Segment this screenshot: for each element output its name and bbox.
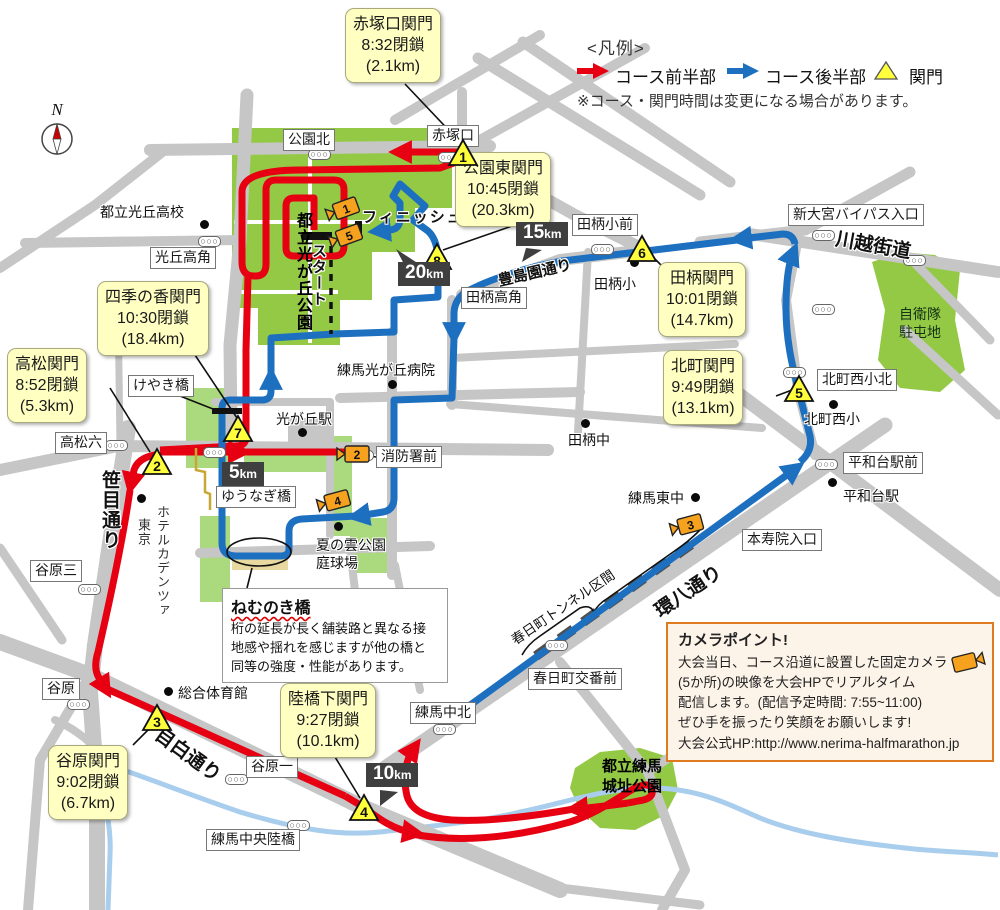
poi-natsunokumo: 夏の雲公園 庭球場: [316, 536, 386, 572]
callout-title: 陸橋下関門: [288, 689, 368, 710]
legend-checkpoint-label: 関門: [909, 63, 943, 88]
km-unit: km: [426, 267, 443, 281]
traffic-signal-icon: [78, 584, 101, 595]
poi-nerima-higashi-chu: 練馬東中: [628, 488, 684, 508]
park-label-line: 都立練馬: [602, 757, 662, 777]
place-box-honjuin: 本寿院入口: [742, 529, 822, 551]
legend-checkpoint-icon: [873, 60, 899, 86]
checkpoint-marker-7: 7: [222, 414, 254, 448]
place-box-nerima-chuo-rikkyo: 練馬中央陸橋: [206, 829, 300, 851]
km-marker-5: 5km: [222, 462, 264, 486]
camera-icon: [949, 646, 990, 685]
km-value: 10: [373, 763, 394, 784]
place-box-yawara3: 谷原三: [30, 560, 82, 582]
checkpoint-number: 4: [360, 804, 368, 820]
callout-checkpoint-4: 陸橋下関門 9:27閉鎖 (10.1km): [280, 683, 376, 758]
checkpoint-number: 2: [153, 458, 161, 474]
callout-distance: (20.3km): [463, 200, 543, 221]
poi-dot: [137, 494, 146, 503]
traffic-signal-icon: [591, 244, 614, 255]
poi-hikarigaoka-sta: 光が丘駅: [276, 409, 332, 429]
callout-distance: (18.4km): [105, 329, 201, 350]
callout-title: 谷原関門: [56, 751, 120, 772]
legend-second-half-label: コース後半部: [765, 63, 866, 88]
finish-label: フィニッシュ: [362, 206, 464, 227]
camera-info-box: カメラポイント! 大会当日、コース沿道に設置した固定カメラ (5か所)の映像を大…: [666, 622, 994, 762]
traffic-signal-icon: [545, 640, 568, 651]
traffic-signal-icon: [67, 699, 90, 710]
checkpoint-number: 6: [638, 245, 646, 261]
callout-title: 北町関門: [671, 356, 735, 377]
traffic-signal-icon: [812, 230, 835, 241]
callout-distance: (14.7km): [666, 310, 738, 331]
checkpoint-marker-6: 6: [626, 234, 658, 268]
poi-kitamachi-nishi-sho: 北町西小: [804, 409, 860, 429]
poi-dot: [828, 478, 837, 487]
place-box-koenkita: 公園北: [283, 129, 335, 151]
callout-checkpoint-7: 四季の香関門 10:30閉鎖 (18.4km): [97, 281, 209, 356]
traffic-signal-icon: [203, 447, 226, 458]
callout-checkpoint-3: 谷原関門 9:02閉鎖 (6.7km): [48, 745, 128, 820]
place-box-tagara-takakado: 田柄高角: [461, 287, 527, 309]
place-box-shobosho-mae: 消防署前: [376, 446, 442, 468]
checkpoint-marker-3: 3: [141, 703, 173, 737]
poi-line: 夏の雲公園: [316, 536, 386, 554]
marathon-course-map: N <凡例> コース前半部 コース後半部 関門 ※コース・関門時間は変更になる場…: [0, 0, 1000, 910]
callout-time: 9:27閉鎖: [288, 710, 368, 731]
callout-title: 田柄関門: [666, 268, 738, 289]
road-label-sasame: 笹目通り: [96, 470, 123, 550]
place-box-yunagibashi: ゆうなぎ橋: [216, 486, 296, 508]
checkpoint-number: 1: [459, 149, 467, 165]
legend-second-half-arrow-icon: [725, 62, 761, 85]
checkpoint-number: 5: [795, 385, 803, 401]
nemunoki-line: 同等の強度・性能があります。: [231, 658, 439, 677]
start-label: スタート: [308, 243, 329, 307]
place-box-yawara1: 谷原一: [246, 756, 298, 778]
km-marker-10: 10km: [366, 763, 418, 787]
poi-dot: [200, 220, 209, 229]
poi-dot: [164, 687, 173, 696]
poi-dot: [298, 428, 307, 437]
callout-checkpoint-5: 北町関門 9:49閉鎖 (13.1km): [663, 350, 743, 425]
checkpoint-marker-1: 1: [447, 138, 479, 172]
legend-title: <凡例>: [587, 34, 645, 59]
nemunoki-line: 地感や揺れを感じますが他の橋と: [231, 639, 439, 658]
callout-time: 10:30閉鎖: [105, 308, 201, 329]
camera-info-line: (5か所)の映像を大会HPでリアルタイム: [678, 673, 982, 693]
callout-time: 8:32閉鎖: [353, 35, 433, 56]
legend: <凡例> コース前半部 コース後半部 関門 ※コース・関門時間は変更になる場合が…: [565, 30, 997, 112]
callout-time: 8:52閉鎖: [15, 375, 79, 396]
place-box-nerima-nakakita: 練馬中北: [410, 702, 476, 724]
km-unit: km: [544, 227, 561, 241]
km-unit: km: [240, 467, 257, 481]
poi-dot: [334, 522, 343, 531]
poi-hikarigaoka-hosp: 練馬光が丘病院: [337, 360, 435, 380]
callout-distance: (10.1km): [288, 731, 368, 752]
place-box-yawara: 谷原: [42, 678, 80, 700]
km-value: 20: [405, 262, 426, 283]
place-box-tagara-sho-mae: 田柄小前: [572, 214, 638, 236]
traffic-signal-icon: [308, 149, 331, 160]
poi-hikarigaoka-hs: 都立光丘高校: [100, 202, 184, 222]
camera-info-line: 大会当日、コース沿道に設置した固定カメラ: [678, 653, 982, 673]
camera-marker-2: 2: [336, 441, 372, 472]
poi-hotel-line2: 東京: [134, 518, 153, 546]
park-label-jieitai: 自衛隊 駐屯地: [899, 305, 941, 341]
nemunoki-note: ねむのき橋 桁の延長が長く舗装路と異なる接 地感や揺れを感じますが他の橋と 同等…: [222, 588, 448, 683]
poi-tagara-sho: 田柄小: [594, 274, 636, 294]
poi-dot: [691, 493, 700, 502]
callout-distance: (5.3km): [15, 396, 79, 417]
place-box-shin-omiya: 新大宮バイパス入口: [788, 204, 924, 226]
poi-hotel-line1: ホテルカデンツァ: [153, 505, 172, 617]
checkpoint-marker-2: 2: [141, 447, 173, 481]
nemunoki-title: ねむのき橋: [231, 594, 439, 618]
park-label-line: 自衛隊: [899, 305, 941, 323]
checkpoint-number: 3: [153, 714, 161, 730]
place-box-hikarigaokakado: 光丘高角: [150, 247, 216, 269]
callout-title: 高松関門: [15, 354, 79, 375]
callout-distance: (13.1km): [671, 398, 735, 419]
camera-info-title: カメラポイント!: [678, 630, 982, 653]
poi-heiwadai-sta: 平和台駅: [843, 486, 899, 506]
legend-first-half-label: コース前半部: [615, 63, 716, 88]
callout-time: 10:01閉鎖: [666, 289, 738, 310]
place-box-kitamachi-nishi-sho-kita: 北町西小北: [817, 369, 897, 391]
checkpoint-number: 7: [234, 425, 242, 441]
compass-label: N: [38, 100, 76, 120]
poi-tagara-chu: 田柄中: [568, 430, 610, 450]
traffic-signal-icon: [433, 724, 456, 735]
callout-distance: (6.7km): [56, 793, 120, 814]
traffic-signal-icon: [812, 304, 835, 315]
park-label-line: 駐屯地: [899, 323, 941, 341]
callout-checkpoint-1: 赤塚口関門 8:32閉鎖 (2.1km): [345, 8, 441, 83]
poi-sogo-taiikukan: 総合体育館: [178, 683, 248, 703]
callout-checkpoint-6: 田柄関門 10:01閉鎖 (14.7km): [658, 262, 746, 337]
callout-title: 四季の香関門: [105, 287, 201, 308]
poi-dot: [829, 400, 838, 409]
compass-rose-icon: [38, 120, 76, 158]
km-marker-15: 15km: [516, 222, 568, 246]
callout-distance: (2.1km): [353, 56, 433, 77]
km-unit: km: [394, 768, 411, 782]
camera-number: 2: [354, 448, 361, 462]
traffic-signal-icon: [815, 459, 838, 470]
checkpoint-marker-4: 4: [348, 793, 380, 827]
camera-info-line: ぜひ手を振ったり笑顔をお願いします!: [678, 713, 982, 733]
traffic-signal-icon: [225, 774, 248, 785]
nemunoki-line: 桁の延長が長く舗装路と異なる接: [231, 620, 439, 639]
checkpoint-marker-5: 5: [783, 374, 815, 408]
km-marker-20: 20km: [398, 262, 450, 286]
park-label-nerimajo: 都立練馬 城址公園: [602, 757, 662, 798]
park-label-line: 城址公園: [602, 777, 662, 797]
traffic-signal-icon: [198, 236, 221, 247]
poi-dot: [388, 380, 397, 389]
poi-line: 庭球場: [316, 554, 386, 572]
poi-dot: [581, 419, 590, 428]
camera-info-line: 配信します。(配信予定時間: 7:55~11:00): [678, 693, 982, 713]
legend-note: ※コース・関門時間は変更になる場合があります。: [577, 90, 917, 111]
legend-first-half-arrow-icon: [575, 62, 611, 85]
place-box-kasugacho-koban: 春日町交番前: [528, 668, 622, 690]
callout-title: 赤塚口関門: [353, 14, 433, 35]
callout-time: 9:49閉鎖: [671, 377, 735, 398]
camera-info-line: 大会公式HP:http://www.nerima-halfmarathon.jp: [678, 734, 982, 754]
compass: N: [38, 100, 76, 163]
place-box-keyakibashi: けやき橋: [128, 375, 194, 397]
callout-time: 10:45閉鎖: [463, 179, 543, 200]
callout-checkpoint-2: 高松関門 8:52閉鎖 (5.3km): [7, 348, 87, 423]
km-value: 5: [229, 462, 240, 483]
place-box-heiwadai-ekimae: 平和台駅前: [843, 452, 923, 474]
traffic-signal-icon: [105, 440, 128, 451]
place-box-takamatsu6: 高松六: [55, 432, 107, 454]
callout-time: 9:02閉鎖: [56, 772, 120, 793]
km-value: 15: [523, 222, 544, 243]
